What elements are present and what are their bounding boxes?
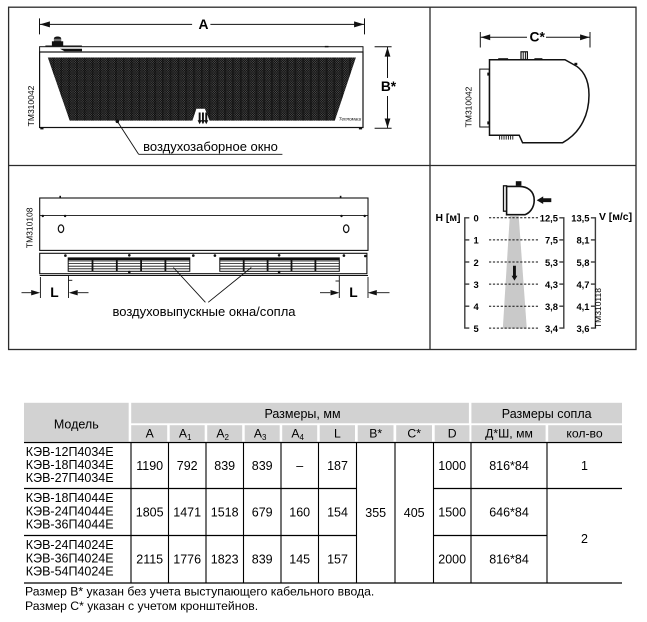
svg-text:679: 679 bbox=[252, 505, 273, 519]
svg-text:A: A bbox=[199, 17, 209, 32]
svg-text:C*: C* bbox=[407, 427, 421, 441]
svg-text:4,1: 4,1 bbox=[576, 301, 589, 312]
svg-text:4: 4 bbox=[474, 301, 480, 312]
svg-text:D: D bbox=[448, 427, 457, 441]
svg-text:3,6: 3,6 bbox=[576, 323, 589, 334]
svg-text:355: 355 bbox=[365, 506, 386, 520]
svg-text:V [м/с]: V [м/с] bbox=[599, 212, 632, 223]
svg-text:КЭВ-54П4024Е: КЭВ-54П4024Е bbox=[26, 565, 114, 579]
svg-text:12,5: 12,5 bbox=[540, 213, 558, 224]
svg-text:816*84: 816*84 bbox=[489, 459, 529, 473]
svg-text:816*84: 816*84 bbox=[489, 553, 529, 567]
svg-text:1: 1 bbox=[474, 235, 479, 246]
svg-text:1471: 1471 bbox=[173, 505, 201, 519]
svg-text:8,1: 8,1 bbox=[576, 235, 589, 246]
svg-text:7,5: 7,5 bbox=[545, 235, 558, 246]
svg-text:157: 157 bbox=[327, 553, 348, 567]
svg-text:1823: 1823 bbox=[211, 553, 239, 567]
svg-text:Размеры сопла: Размеры сопла bbox=[502, 407, 592, 421]
svg-text:–: – bbox=[296, 459, 303, 473]
svg-text:КЭВ-18П4044Е: КЭВ-18П4044Е bbox=[26, 491, 114, 505]
svg-text:A: A bbox=[146, 427, 155, 441]
svg-text:5: 5 bbox=[474, 323, 479, 334]
svg-text:2000: 2000 bbox=[438, 553, 466, 567]
svg-text:КЭВ-36П4044Е: КЭВ-36П4044Е bbox=[26, 518, 114, 532]
svg-text:кол-во: кол-во bbox=[566, 427, 602, 441]
svg-text:839: 839 bbox=[214, 459, 235, 473]
svg-text:L: L bbox=[349, 285, 357, 300]
svg-text:Размер C* указан с учетом крон: Размер C* указан с учетом кронштейнов. bbox=[25, 599, 258, 613]
svg-text:1805: 1805 bbox=[136, 505, 164, 519]
svg-text:5,3: 5,3 bbox=[545, 257, 558, 268]
svg-text:H [м]: H [м] bbox=[436, 213, 461, 224]
svg-text:154: 154 bbox=[327, 505, 348, 519]
svg-text:ТМ310108: ТМ310108 bbox=[25, 207, 35, 248]
svg-text:839: 839 bbox=[252, 459, 273, 473]
svg-text:ТМ310042: ТМ310042 bbox=[26, 85, 36, 126]
svg-text:4,7: 4,7 bbox=[576, 279, 589, 290]
svg-text:5,8: 5,8 bbox=[576, 257, 589, 268]
svg-text:1: 1 bbox=[581, 459, 588, 473]
svg-text:воздухозаборное окно: воздухозаборное окно bbox=[143, 139, 278, 154]
svg-text:3,8: 3,8 bbox=[545, 301, 558, 312]
svg-text:646*84: 646*84 bbox=[489, 505, 529, 519]
svg-text:L: L bbox=[334, 427, 341, 441]
svg-text:839: 839 bbox=[252, 553, 273, 567]
svg-text:КЭВ-24П4024Е: КЭВ-24П4024Е bbox=[26, 538, 114, 552]
svg-text:КЭВ-36П4024Е: КЭВ-36П4024Е bbox=[26, 551, 114, 565]
svg-text:B*: B* bbox=[381, 79, 397, 94]
svg-text:ТМ310042: ТМ310042 bbox=[463, 86, 473, 127]
svg-text:КЭВ-24П4044Е: КЭВ-24П4044Е bbox=[26, 504, 114, 518]
svg-text:1776: 1776 bbox=[173, 553, 201, 567]
svg-text:3,4: 3,4 bbox=[545, 323, 559, 334]
svg-text:1500: 1500 bbox=[438, 505, 466, 519]
svg-text:L: L bbox=[50, 285, 58, 300]
svg-text:4,3: 4,3 bbox=[545, 279, 558, 290]
svg-text:КЭВ-12П4034Е: КЭВ-12П4034Е bbox=[26, 445, 114, 459]
svg-text:2115: 2115 bbox=[136, 553, 163, 567]
svg-text:13,5: 13,5 bbox=[571, 213, 589, 224]
svg-text:187: 187 bbox=[327, 459, 348, 473]
svg-text:145: 145 bbox=[289, 553, 310, 567]
svg-text:КЭВ-27П4034Е: КЭВ-27П4034Е bbox=[26, 471, 114, 485]
svg-text:Тепломаш: Тепломаш bbox=[339, 117, 362, 122]
svg-text:1190: 1190 bbox=[136, 459, 163, 473]
svg-text:2: 2 bbox=[474, 257, 479, 268]
svg-text:C*: C* bbox=[530, 29, 546, 44]
svg-text:1518: 1518 bbox=[211, 505, 239, 519]
svg-text:Модель: Модель bbox=[54, 418, 99, 432]
svg-text:3: 3 bbox=[474, 279, 479, 290]
svg-text:Д*Ш, мм: Д*Ш, мм bbox=[485, 427, 533, 441]
svg-text:1000: 1000 bbox=[438, 459, 466, 473]
svg-text:Размер B* указан без учета выс: Размер B* указан без учета выступающего … bbox=[25, 585, 374, 599]
svg-text:0: 0 bbox=[474, 213, 479, 224]
svg-text:ТМ310118: ТМ310118 bbox=[593, 288, 603, 328]
svg-text:405: 405 bbox=[404, 506, 425, 520]
svg-text:Размеры, мм: Размеры, мм bbox=[264, 407, 340, 421]
svg-text:160: 160 bbox=[289, 505, 310, 519]
svg-text:воздуховыпускные окна/сопла: воздуховыпускные окна/сопла bbox=[112, 304, 296, 319]
svg-text:B*: B* bbox=[369, 427, 382, 441]
svg-text:792: 792 bbox=[177, 459, 198, 473]
svg-text:2: 2 bbox=[581, 532, 588, 546]
